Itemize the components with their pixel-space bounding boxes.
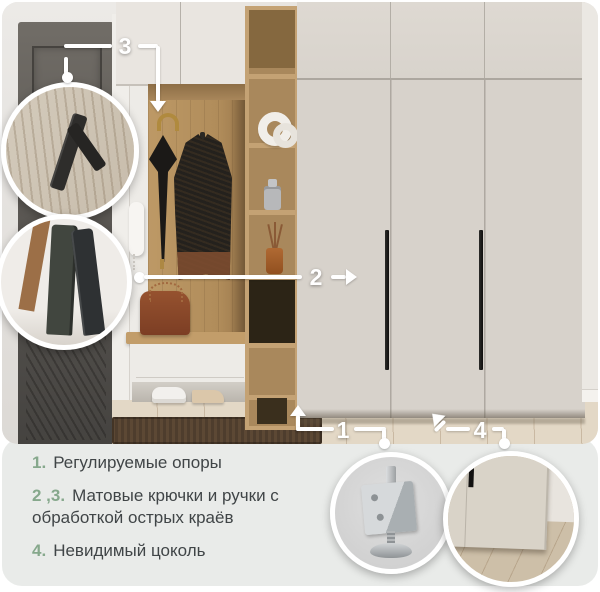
handle-edge-closeup-inset (0, 214, 132, 350)
wardrobe-upper-doors (297, 2, 585, 80)
adjustable-foot-inset (330, 452, 452, 574)
wardrobe-handle (385, 230, 389, 370)
arrow-right-icon (346, 269, 357, 285)
baseboard (582, 389, 598, 402)
door-bottom (443, 451, 550, 550)
feature-number: 1. (32, 453, 46, 472)
callout-line (331, 275, 346, 279)
ring-sculpture-small (273, 123, 298, 148)
intercom-cord (133, 254, 141, 270)
callout-line (144, 275, 302, 279)
open-shelf-unit (245, 6, 299, 430)
feature-number: 2 ,3. (32, 486, 65, 505)
door-gap (484, 2, 485, 78)
callout-line (296, 427, 334, 431)
door-gap (464, 451, 468, 547)
callout-line (64, 44, 112, 48)
diffuser-bottle (266, 248, 283, 274)
callout-line (156, 46, 160, 102)
shelf (249, 210, 295, 215)
umbrella-handle (157, 113, 179, 131)
arrow-down-icon (150, 101, 166, 112)
feature-text: Матовые крючки и ручки с обработкой остр… (32, 486, 279, 527)
marker-4: 4 (470, 417, 490, 444)
coat (174, 134, 232, 280)
wall (545, 451, 579, 523)
feature-text: Невидимый цоколь (53, 541, 205, 560)
feature-item-2-3: 2 ,3.Матовые крючки и ручки с обработкой… (32, 485, 332, 529)
feature-item-1: 1.Регулируемые опоры (32, 452, 332, 474)
robot-head (268, 179, 277, 187)
foot-base (370, 543, 412, 558)
wall (582, 2, 598, 402)
bracket-hole (371, 494, 379, 502)
callout-dot (379, 438, 390, 449)
callout-line (446, 427, 470, 431)
bag-chain (149, 282, 183, 302)
door-gap (390, 80, 392, 418)
bench-drawer (130, 344, 250, 382)
handbag (140, 291, 190, 335)
bench-underside (132, 382, 250, 402)
dark-cubby (249, 280, 295, 343)
callout-dot (62, 72, 73, 83)
door-gap (484, 80, 486, 418)
wood-strip (18, 214, 51, 312)
bracket-hole (376, 514, 384, 522)
callout-line (138, 44, 158, 48)
feature-number: 4. (32, 541, 46, 560)
foot-bracket (361, 481, 417, 535)
door-gap (390, 2, 391, 78)
hook-closeup-inset (1, 82, 139, 220)
shelf (249, 343, 295, 348)
shelf (249, 74, 295, 79)
wood-soffit (148, 84, 248, 100)
feature-list: 1.Регулируемые опоры 2 ,3.Матовые крючки… (32, 452, 332, 573)
product-infographic: 1.Регулируемые опоры 2 ,3.Матовые крючки… (0, 0, 600, 592)
wardrobe-handle (479, 230, 483, 370)
matte-panel (71, 228, 106, 336)
cabinet-gap (180, 2, 181, 84)
drawer-gap (136, 377, 244, 378)
heels (192, 390, 224, 403)
feature-text: Регулируемые опоры (53, 453, 222, 472)
callout-dot (499, 438, 510, 449)
handle-end (468, 461, 474, 487)
marker-3: 3 (112, 33, 138, 60)
plinth-slot (257, 398, 287, 424)
wardrobe (297, 2, 585, 418)
umbrella-tip (160, 259, 164, 269)
feature-item-4: 4.Невидимый цоколь (32, 540, 332, 562)
intercom-handset (129, 202, 144, 256)
invisible-plinth-inset (443, 451, 579, 587)
sneakers (152, 387, 186, 403)
marker-2: 2 (304, 264, 328, 291)
robot-figurine (264, 186, 281, 210)
marker-1: 1 (334, 417, 352, 444)
